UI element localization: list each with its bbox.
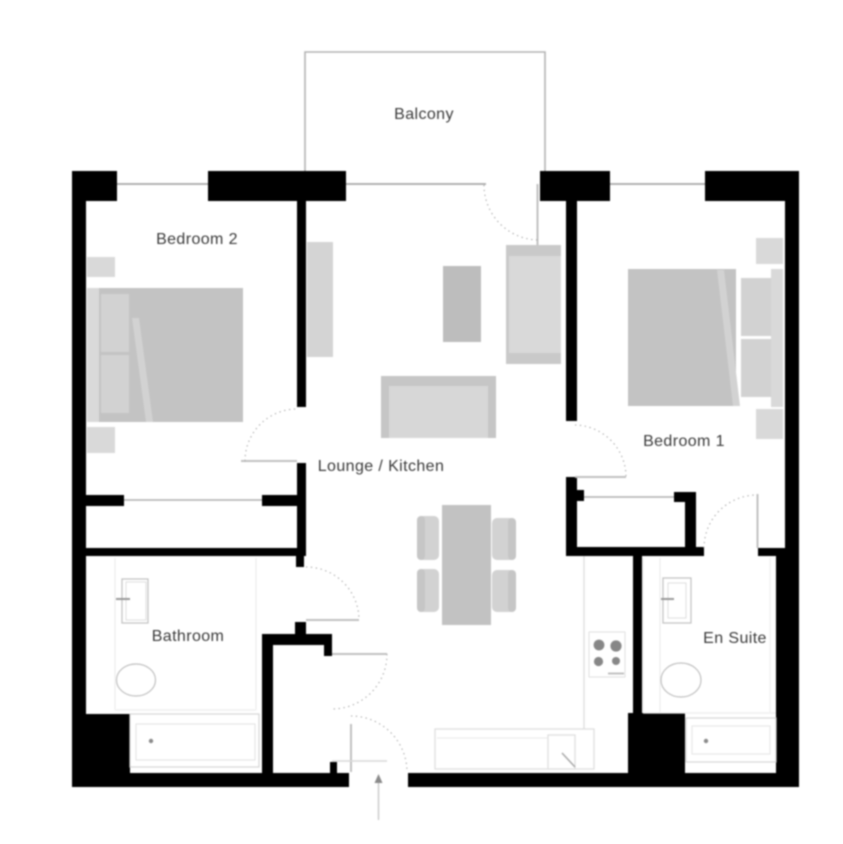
svg-text:Bathroom: Bathroom <box>152 628 225 645</box>
svg-text:Lounge / Kitchen: Lounge / Kitchen <box>318 458 445 475</box>
svg-text:Bedroom 2: Bedroom 2 <box>156 231 238 248</box>
svg-text:Balcony: Balcony <box>394 106 454 123</box>
svg-text:En Suite: En Suite <box>703 630 767 647</box>
svg-text:Bedroom 1: Bedroom 1 <box>643 433 725 450</box>
